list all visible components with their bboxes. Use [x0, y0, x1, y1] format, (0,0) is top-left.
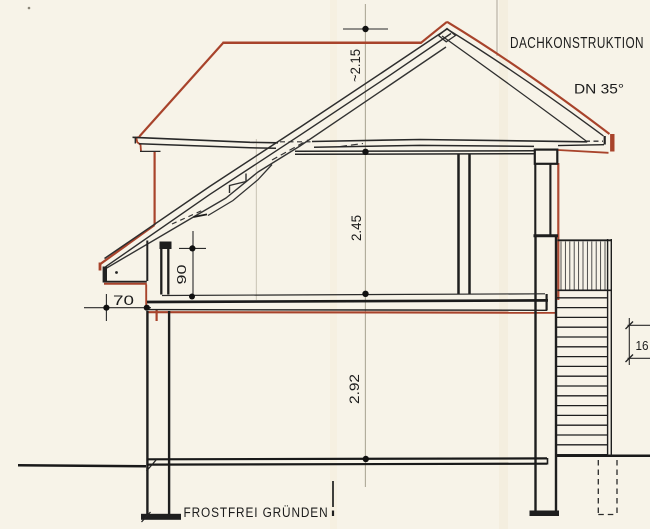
svg-text:70: 70 [113, 293, 134, 308]
svg-text:90: 90 [174, 265, 189, 285]
svg-text:DN 35°: DN 35° [574, 82, 624, 97]
svg-text:2.92: 2.92 [347, 374, 362, 404]
svg-text:16: 16 [636, 339, 649, 353]
svg-text:FROSTFREI GRÜNDEN: FROSTFREI GRÜNDEN [184, 505, 329, 520]
svg-text:DACHKONSTRUKTION: DACHKONSTRUKTION [510, 35, 644, 52]
svg-text:~2.15: ~2.15 [348, 49, 363, 82]
svg-text:2.45: 2.45 [349, 215, 364, 241]
